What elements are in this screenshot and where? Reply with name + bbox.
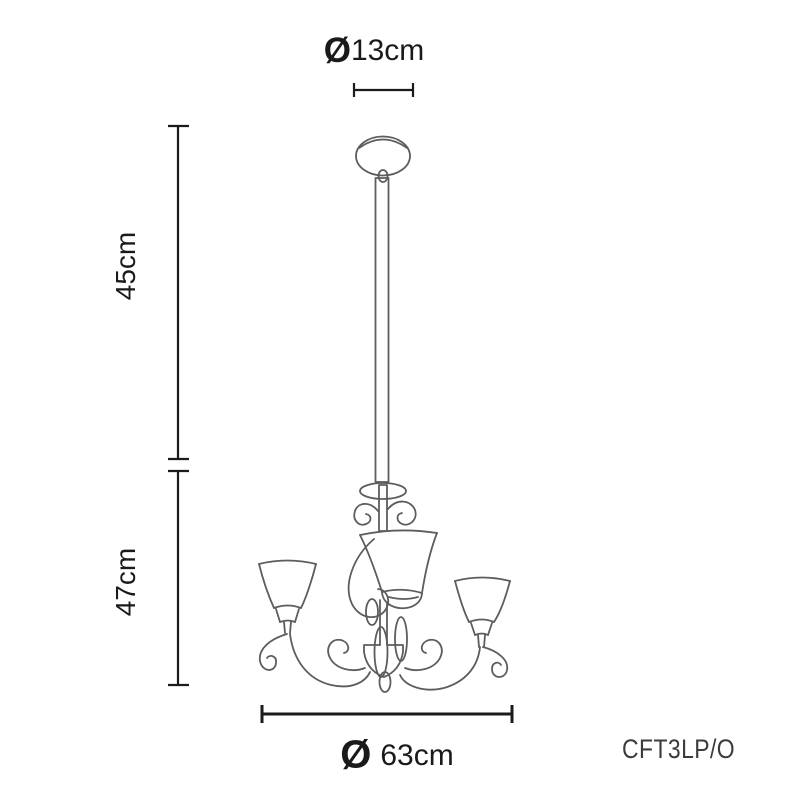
product-spec-sheet: Ø13cm 45cm 47cm Ø63cm CFT3LP/O — [0, 0, 800, 800]
chain-length-label: 45cm — [110, 206, 142, 326]
fixture-diameter-label: Ø63cm — [287, 733, 507, 778]
fixture-diameter-value: 63cm — [380, 739, 453, 772]
crown-scrolls — [354, 502, 415, 525]
right-shade — [455, 578, 510, 648]
dimension-line-chain — [168, 126, 189, 459]
dimension-line-diameter — [262, 705, 512, 723]
glass-teardrop — [349, 539, 388, 617]
dimension-lines — [168, 83, 512, 723]
diameter-symbol: Ø — [340, 733, 371, 777]
dimension-line-body — [168, 471, 189, 685]
body-height-label: 47cm — [110, 522, 142, 642]
product-code: CFT3LP/O — [622, 734, 735, 765]
left-arm — [260, 634, 370, 686]
left-shade — [259, 561, 316, 634]
right-arm — [400, 640, 507, 690]
chandelier — [259, 137, 510, 693]
chandelier-line-drawing — [0, 0, 800, 800]
centre-column — [364, 599, 407, 692]
chain — [376, 178, 389, 482]
diameter-symbol: Ø — [324, 31, 351, 70]
ceiling-canopy — [356, 137, 410, 183]
dimension-line-canopy — [354, 83, 413, 97]
canopy-diameter-value: 13cm — [351, 34, 424, 67]
canopy-diameter-label: Ø13cm — [284, 31, 464, 71]
